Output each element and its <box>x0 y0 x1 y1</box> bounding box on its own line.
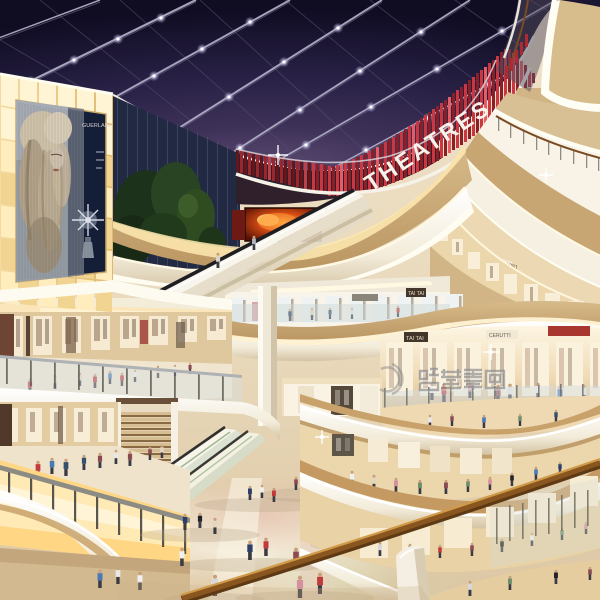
svg-text:TAI TAI: TAI TAI <box>408 291 424 297</box>
svg-text:CERUTTI: CERUTTI <box>489 333 511 339</box>
svg-text:TAI TAI: TAI TAI <box>406 336 424 342</box>
svg-text:GUERLAIN: GUERLAIN <box>82 123 110 129</box>
